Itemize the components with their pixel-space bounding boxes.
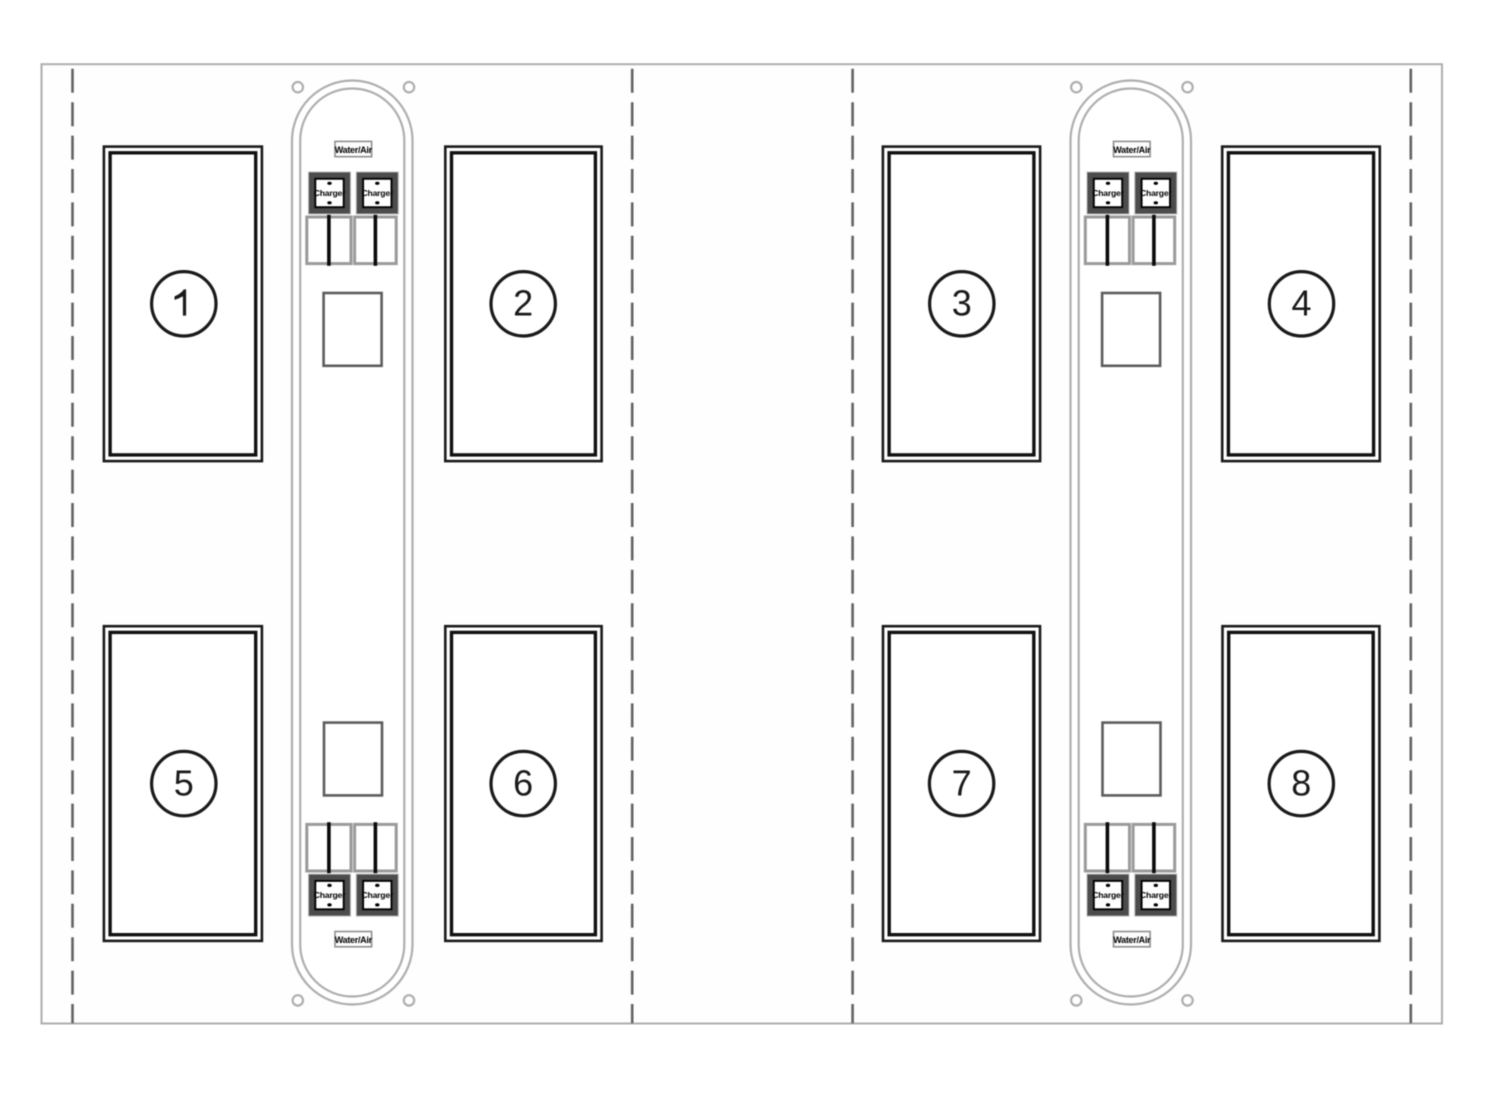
svg-text:2: 2 — [513, 283, 533, 324]
svg-text:5: 5 — [174, 762, 194, 803]
svg-text:Charger: Charger — [1092, 188, 1124, 198]
svg-text:Water/Air: Water/Air — [335, 935, 373, 945]
svg-text:6: 6 — [513, 762, 533, 803]
svg-text:Water/Air: Water/Air — [1113, 935, 1151, 945]
svg-text:Charger: Charger — [362, 890, 394, 900]
svg-text:3: 3 — [952, 283, 972, 324]
svg-text:7: 7 — [952, 762, 972, 803]
svg-text:4: 4 — [1291, 283, 1311, 324]
svg-text:Charger: Charger — [314, 188, 346, 198]
svg-text:Water/Air: Water/Air — [335, 145, 373, 155]
svg-text:Charger: Charger — [362, 188, 394, 198]
svg-text:Water/Air: Water/Air — [1113, 145, 1151, 155]
svg-text:Charger: Charger — [1092, 890, 1124, 900]
svg-text:Charger: Charger — [1140, 188, 1172, 198]
svg-text:Charger: Charger — [314, 890, 346, 900]
svg-text:Charger: Charger — [1140, 890, 1172, 900]
svg-text:8: 8 — [1291, 762, 1311, 803]
